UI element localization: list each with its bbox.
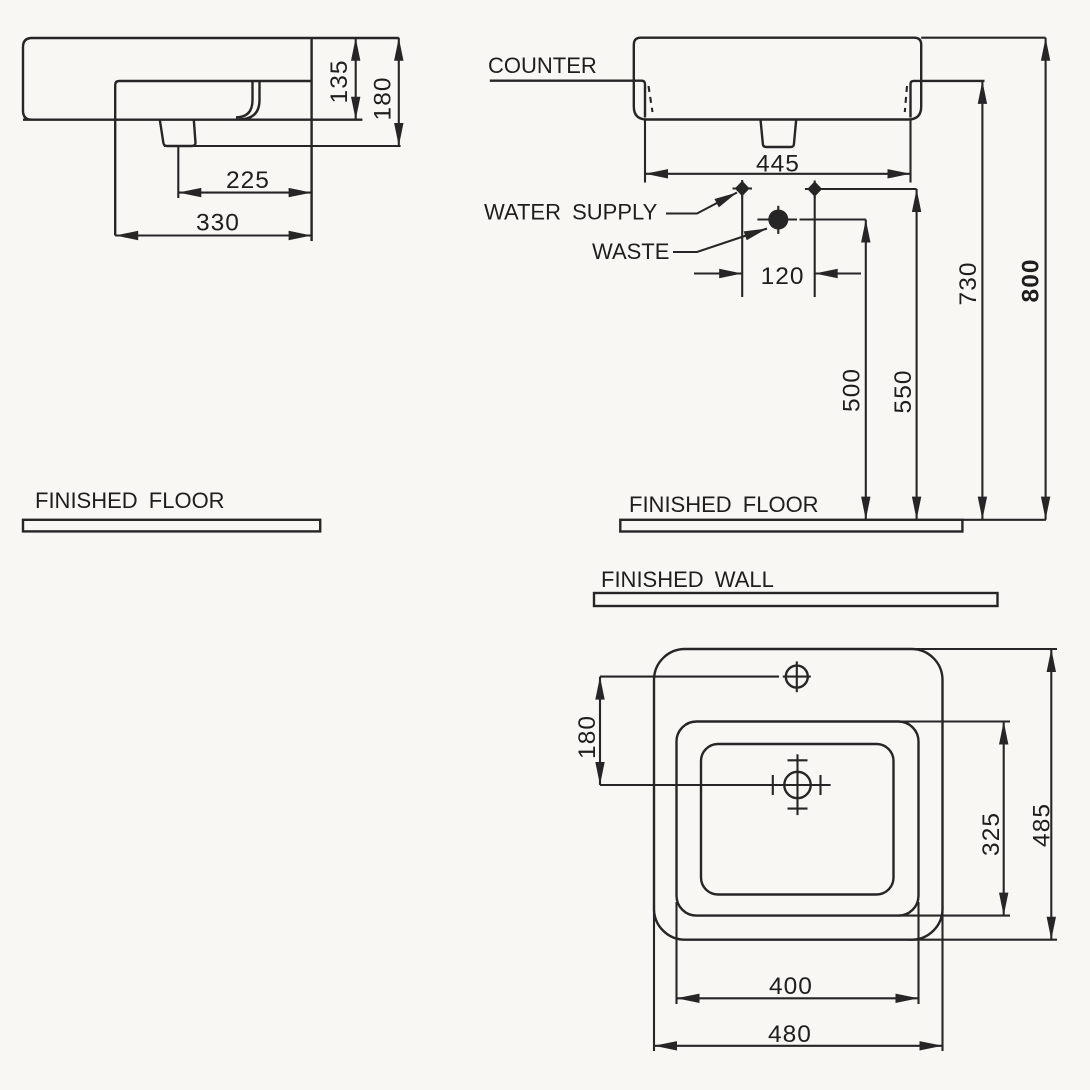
svg-text:FINISHED FLOOR: FINISHED FLOOR	[35, 488, 225, 513]
svg-text:445: 445	[756, 151, 800, 178]
svg-text:WASTE: WASTE	[592, 239, 669, 264]
svg-text:400: 400	[769, 973, 813, 1000]
svg-text:800: 800	[1018, 259, 1045, 303]
svg-text:WATER SUPPLY: WATER SUPPLY	[484, 200, 658, 225]
svg-text:FINISHED WALL: FINISHED WALL	[601, 567, 774, 592]
svg-text:500: 500	[839, 368, 866, 412]
svg-text:480: 480	[768, 1021, 812, 1048]
svg-text:135: 135	[326, 60, 353, 104]
svg-text:COUNTER: COUNTER	[488, 53, 597, 78]
svg-text:120: 120	[761, 263, 805, 290]
svg-text:550: 550	[890, 370, 917, 414]
svg-text:225: 225	[226, 167, 270, 194]
svg-text:730: 730	[955, 262, 982, 306]
svg-text:180: 180	[370, 77, 397, 121]
svg-text:180: 180	[574, 715, 601, 759]
svg-text:330: 330	[196, 210, 240, 237]
svg-text:485: 485	[1029, 803, 1056, 847]
svg-text:FINISHED FLOOR: FINISHED FLOOR	[629, 492, 819, 517]
svg-text:325: 325	[978, 812, 1005, 856]
